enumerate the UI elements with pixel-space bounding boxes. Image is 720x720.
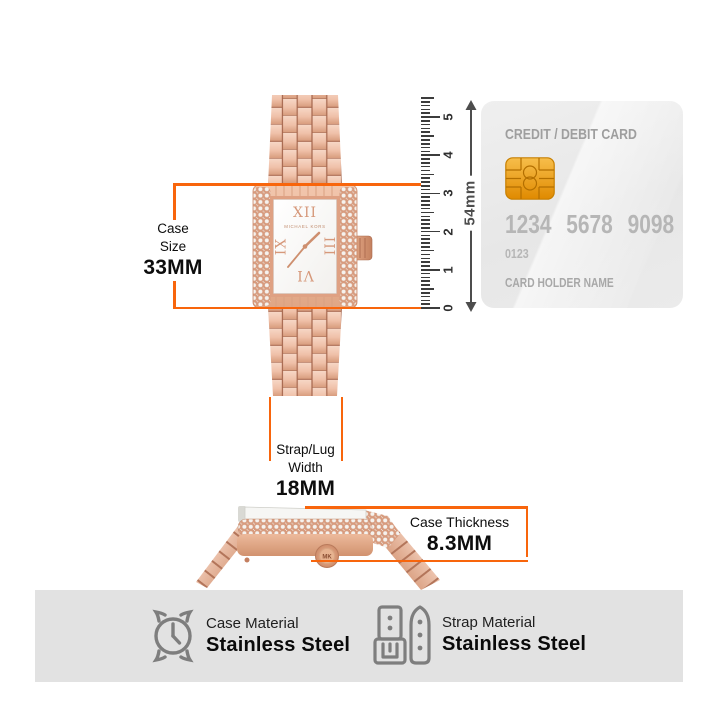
ruler-tick: [421, 223, 430, 225]
ruler-tick: [421, 258, 430, 260]
ruler-number: 4: [441, 152, 456, 159]
case-thickness-label: Case Thickness 8.3MM: [396, 513, 523, 557]
strap-width-label: Strap/Lug Width 18MM: [255, 441, 356, 502]
card-height-label: 54mm: [460, 175, 481, 230]
ruler-tick: [421, 154, 440, 156]
strap-width-line2: Width: [255, 459, 356, 477]
card-sub-number: 0123: [505, 246, 534, 261]
card-number-group: 5678: [566, 211, 613, 239]
ruler-tick: [421, 280, 430, 282]
ruler-tick: [421, 124, 430, 126]
credit-card: CREDIT / DEBIT CARD 123456789098: [481, 101, 683, 308]
ruler-tick: [421, 300, 430, 302]
ruler-tick: [421, 170, 430, 172]
case-material-label: Case Material: [206, 615, 350, 634]
ruler-tick: [421, 296, 430, 298]
card-holder-text: CARD HOLDER NAME: [505, 276, 614, 290]
ruler-tick: [421, 151, 430, 153]
infographic-stage: XII VI III IX MICHAEL KORS Case Size 33M…: [0, 0, 720, 720]
ruler-tick: [421, 128, 430, 130]
watch-case-icon: [151, 607, 195, 665]
ruler-tick: [421, 261, 430, 263]
ruler-tick: [421, 166, 430, 168]
ruler-tick: [421, 284, 430, 286]
ruler-tick: [421, 269, 440, 271]
ruler-tick: [421, 288, 434, 290]
ruler-tick: [421, 227, 430, 229]
ruler-number: 5: [441, 113, 456, 120]
ruler-tick: [421, 212, 434, 214]
ruler-tick: [421, 143, 430, 145]
ruler-tick: [421, 204, 430, 206]
ruler-tick: [421, 101, 430, 103]
ruler-tick: [421, 208, 430, 210]
ruler-tick: [421, 158, 430, 160]
watch-strap-icon: [373, 605, 431, 665]
bracelet-top: [268, 95, 342, 186]
card-chip-icon: [505, 157, 555, 200]
ruler-tick: [421, 277, 430, 279]
dimension-line-thickness-top: [305, 506, 528, 509]
ruler-tick: [421, 185, 430, 187]
side-crown: MK: [316, 545, 339, 568]
ruler-number: 1: [441, 266, 456, 273]
ruler-tick: [421, 196, 430, 198]
strap-material-label: Strap Material: [442, 614, 586, 633]
dimension-line-thickness-bottom: [311, 560, 528, 563]
case-thickness-value: 8.3MM: [396, 531, 523, 557]
ruler-tick: [421, 112, 430, 114]
case-material-item: Case Material Stainless Steel: [151, 607, 350, 665]
ruler-tick: [421, 116, 440, 118]
numeral-9: IX: [274, 238, 290, 256]
ruler-tick: [421, 231, 440, 233]
crystal-strip-right: [340, 187, 357, 306]
card-sub-number-text: 0123: [505, 246, 529, 261]
ruler-tick: [421, 120, 430, 122]
ruler-number: 2: [441, 228, 456, 235]
numeral-3: III: [321, 237, 337, 257]
numeral-12: XII: [293, 205, 317, 221]
ruler-tick: [421, 246, 430, 248]
ruler-tick: [421, 193, 440, 195]
ruler-tick: [421, 181, 430, 183]
ruler-tick: [421, 135, 434, 137]
ruler-number: 3: [441, 190, 456, 197]
card-number-group: 1234: [505, 211, 552, 239]
crystal-strip-left: [254, 187, 271, 306]
strap-width-value: 18MM: [255, 476, 356, 502]
ruler-tick: [421, 131, 430, 133]
case-size-line1: Case: [128, 220, 218, 238]
ruler-tick: [421, 216, 430, 218]
card-number-group: 9098: [628, 211, 675, 239]
dimension-line-thickness-right: [526, 506, 529, 557]
dimension-line-case-top: [173, 183, 421, 186]
ruler-tick: [421, 139, 430, 141]
case-size-value: 33MM: [128, 255, 218, 281]
strap-width-line1: Strap/Lug: [255, 441, 356, 459]
strap-material-value: Stainless Steel: [442, 632, 586, 656]
ruler-tick: [421, 238, 430, 240]
dial-brand: MICHAEL KORS: [284, 224, 325, 229]
case-thickness-text: Case Thickness: [396, 513, 523, 531]
card-holder-label: CARD HOLDER NAME: [505, 276, 638, 290]
ruler-tick: [421, 250, 434, 252]
ruler-tick: [421, 147, 430, 149]
ruler-tick: [421, 105, 430, 107]
ruler-tick: [421, 303, 430, 305]
strap-material-item: Strap Material Stainless Steel: [373, 605, 586, 665]
case-size-line2: Size: [128, 238, 218, 256]
side-crystal-band: [238, 519, 372, 536]
ruler-tick: [421, 200, 430, 202]
side-lug-pin: [245, 558, 250, 563]
ruler-tick: [421, 189, 430, 191]
watch-dial: XII VI III IX MICHAEL KORS: [270, 196, 340, 297]
dimension-line-case-bottom: [173, 307, 421, 310]
card-number: 123456789098: [505, 211, 683, 240]
case-size-label: Case Size 33MM: [128, 220, 218, 281]
ruler-tick: [421, 265, 430, 267]
card-title: CREDIT / DEBIT CARD: [505, 126, 666, 143]
side-case-body: [237, 534, 373, 556]
ruler-tick: [421, 292, 430, 294]
ruler-tick: [421, 254, 430, 256]
ruler-tick: [421, 177, 430, 179]
ruler-tick: [421, 97, 434, 99]
ruler-tick: [421, 242, 430, 244]
ruler-number: 0: [441, 304, 456, 311]
numeral-6: VI: [296, 267, 315, 283]
bracelet-bottom: [268, 307, 342, 396]
ruler-tick: [421, 174, 434, 176]
ruler-tick: [421, 109, 430, 111]
case-material-value: Stainless Steel: [206, 633, 350, 657]
ruler-tick: [421, 235, 430, 237]
ruler-tick: [421, 162, 430, 164]
card-title-text: CREDIT / DEBIT CARD: [505, 126, 637, 143]
ruler-tick: [421, 307, 440, 309]
ruler-tick: [421, 219, 430, 221]
watch-front-view: XII VI III IX MICHAEL KORS: [238, 90, 378, 400]
ruler-tick: [421, 273, 430, 275]
materials-bar: Case Material Stainless Steel Str: [35, 590, 683, 682]
